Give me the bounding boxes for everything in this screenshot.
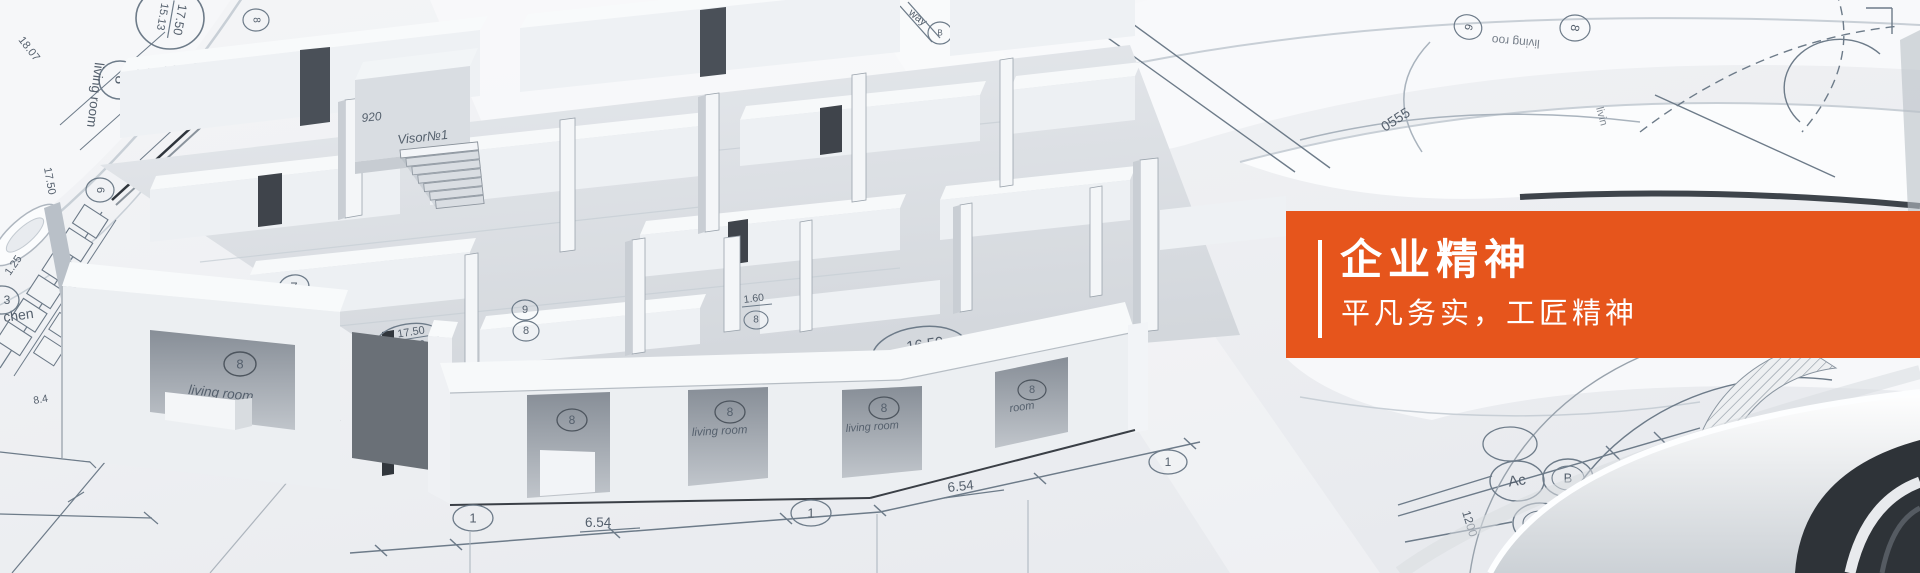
window-marker-1: 8 [236,357,243,372]
label-dim-84: 8.4 [32,393,49,407]
label-shaft-code: 920 [361,109,383,125]
marker-8-floor2: 8 [753,315,759,326]
panel-subtitle: 平凡务实，工匠精神 [1341,297,1638,331]
accent-bar [1318,240,1322,338]
hero-banner: 18.07 17.50 15.13 1 8 living room 17.50 … [0,0,1920,573]
building-model: 920 Visor№1 7 9 8 17.50 [62,0,1286,505]
marker-1-c: 1 [1165,455,1172,469]
label-dim-160: 1.60 [743,292,765,306]
marker-8-roll-small: 8 [251,17,262,23]
marker-b-small: B [937,29,942,38]
marker-9: 9 [522,304,528,316]
window-marker-2: 8 [569,413,576,427]
label-654-b: 6.54 [947,477,975,495]
window-marker-4: 8 [881,401,888,415]
marker-ac: Ac [1507,471,1527,490]
label-654-a: 6.54 [585,515,612,530]
marker-1-a: 1 [469,511,476,526]
marker-3-left: 3 [4,293,11,307]
window-marker-5: 8 [1029,384,1035,396]
info-panel: 企业精神 平凡务实，工匠精神 [1286,211,1920,358]
panel-title: 企业精神 [1340,237,1532,283]
marker-6-roll: 6 [94,187,106,193]
marker-8-floor: 8 [523,325,529,337]
window-marker-3: 8 [727,405,734,419]
marker-1-b: 1 [807,506,814,521]
